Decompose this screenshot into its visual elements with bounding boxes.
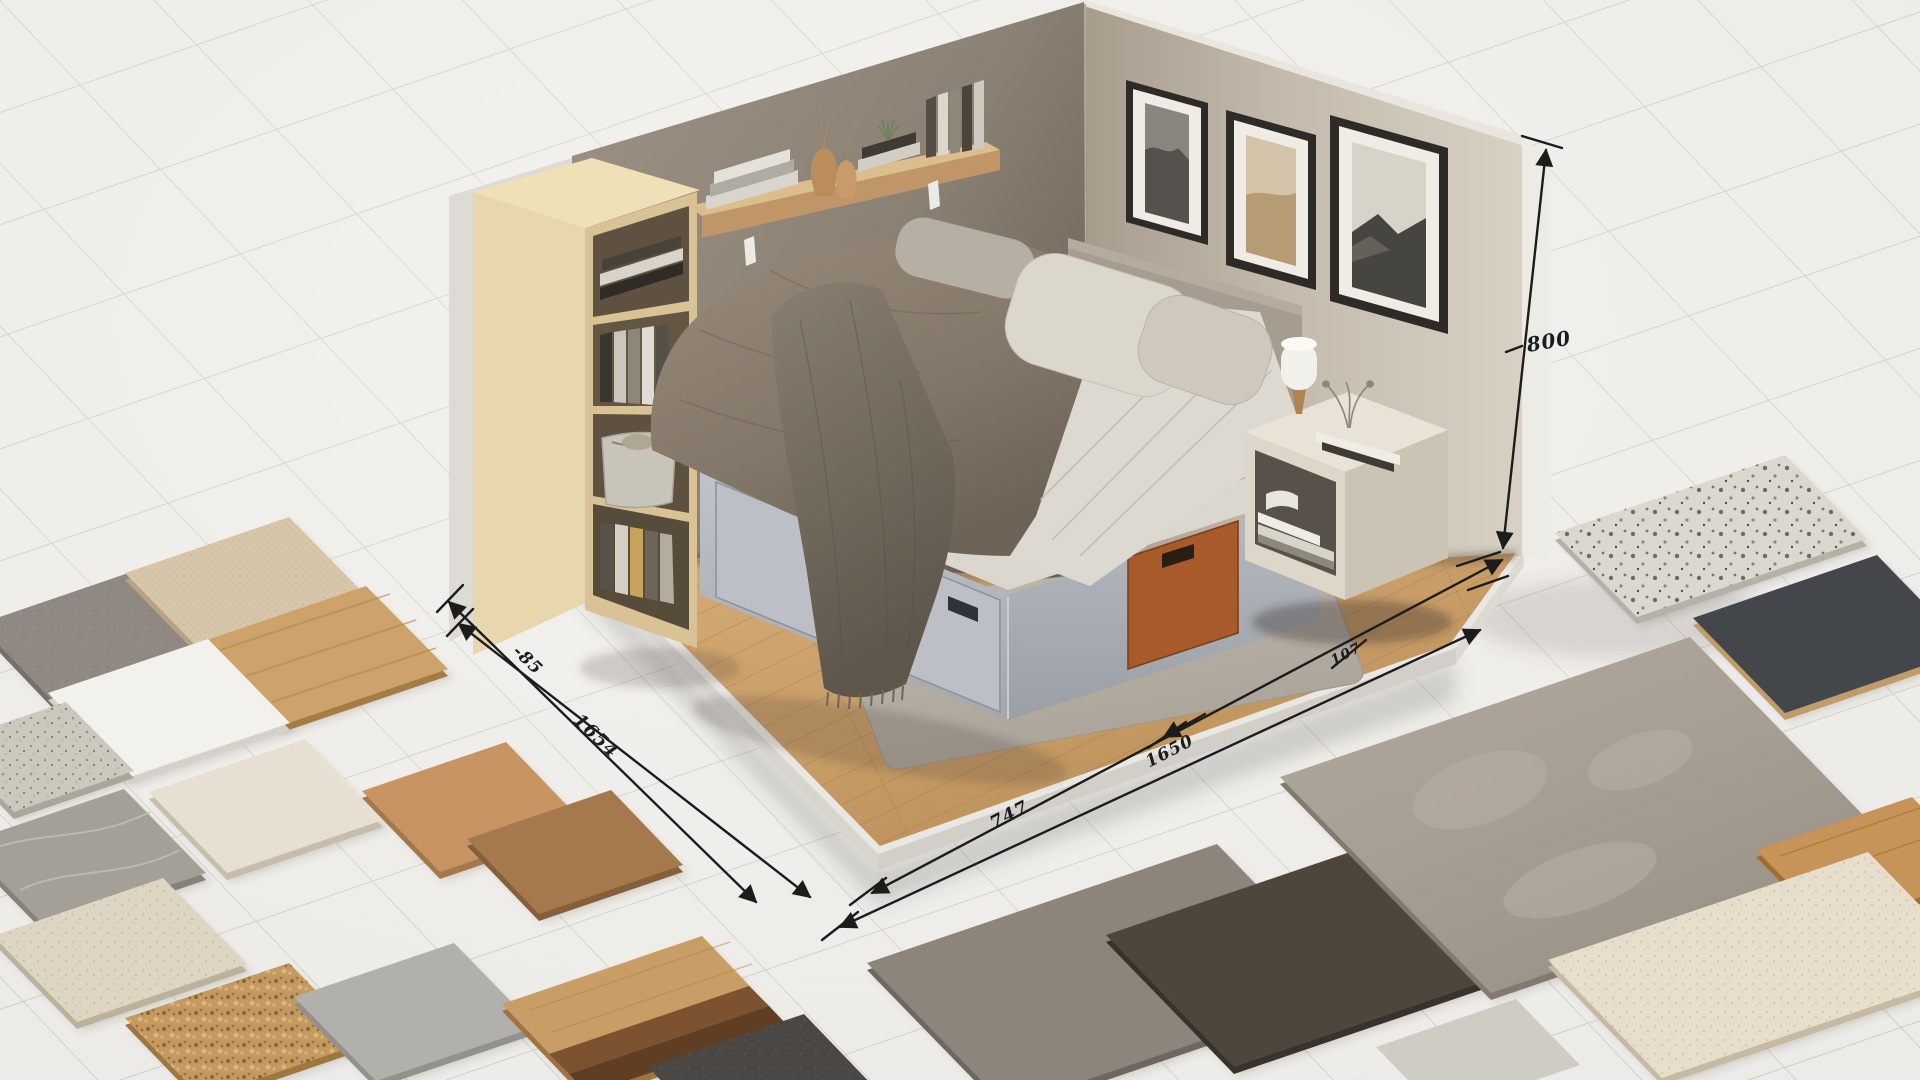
frame-large	[1330, 115, 1448, 334]
scene-svg: 800 -85 1654 747 1650 107	[0, 0, 1920, 1080]
frame-small	[1126, 80, 1208, 245]
render-canvas: 800 -85 1654 747 1650 107	[0, 0, 1920, 1080]
shelf-bracket	[928, 180, 940, 210]
frame-medium	[1226, 110, 1316, 290]
shelf-bracket	[744, 236, 756, 266]
bookshelf-side	[473, 158, 592, 655]
